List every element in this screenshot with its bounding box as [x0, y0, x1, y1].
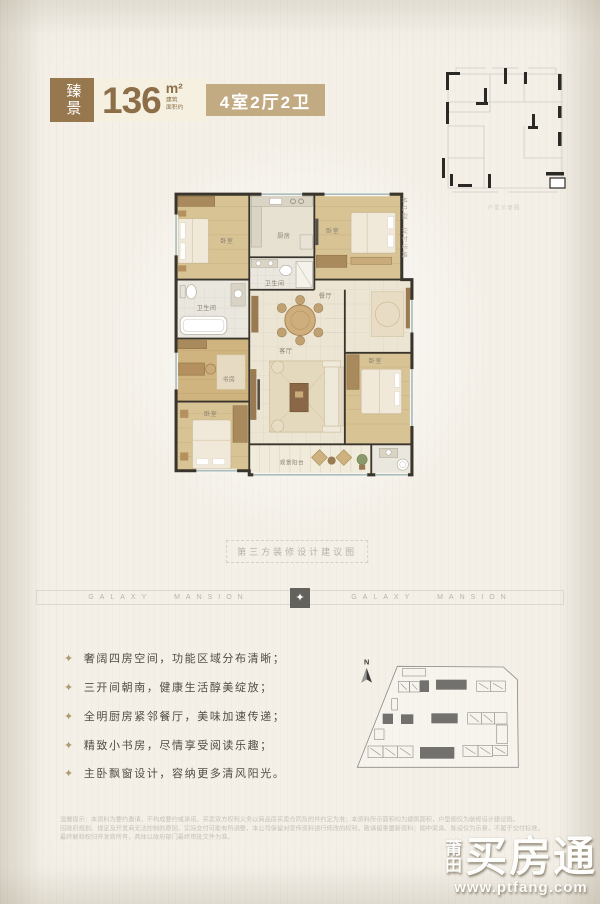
diamond-icon: ✦	[290, 588, 310, 608]
feature-text: 主卧飘窗设计，容纳更多清风阳光。	[84, 767, 286, 782]
watermark-city: 莆 田	[445, 840, 462, 875]
label-dining: 餐厅	[319, 292, 332, 300]
feature-text: 全明厨房紧邻餐厅，美味加速传递；	[84, 710, 286, 725]
header-badge: 臻景 136 m² 建筑 面积约 4室2厅2卫	[50, 78, 325, 122]
watermark-url: www.ptfang.com	[445, 879, 597, 896]
label-study: 书房	[222, 375, 235, 383]
project-tag-badge: 臻景	[50, 78, 94, 122]
feature-list: ✦ 奢阔四房空间，功能区域分布清晰； ✦ 三开间朝南，健康生活醇美绽放； ✦ 全…	[64, 652, 364, 796]
main-floor-plan: 卧室 卫生间 书房 卧室 厨房 卫生间 卧室 餐厅 客厅 卧室 观景阳台	[172, 190, 416, 484]
label-bedroom-tl: 卧室	[220, 237, 233, 245]
watermark-name: 买房通	[465, 836, 597, 878]
label-balcony: 观景阳台	[280, 459, 304, 467]
area-note: 建筑 面积约	[166, 97, 183, 112]
disclaimer-line: 温馨提示：本资料为要约邀请，不构成要约或承诺，买卖双方权利义务以商品房买卖合同及…	[60, 816, 537, 825]
site-watermark: 莆 田 买房通 www.ptfang.com	[445, 836, 597, 896]
north-arrow: N	[361, 658, 372, 683]
list-item: ✦ 奢阔四房空间，功能区域分布清晰；	[64, 652, 364, 667]
feature-text: 三开间朝南，健康生活醇美绽放；	[84, 681, 273, 696]
plan-disclaimer-caption: 第三方装修设计建议图	[226, 540, 368, 563]
diamond-bullet-icon: ✦	[64, 739, 75, 754]
label-bedroom-right: 卧室	[369, 357, 382, 365]
north-label: N	[364, 658, 369, 667]
diamond-bullet-icon: ✦	[64, 652, 75, 667]
list-item: ✦ 三开间朝南，健康生活醇美绽放；	[64, 681, 364, 696]
band-text-right: GALAXY MANSION	[300, 594, 563, 601]
feature-text: 奢阔四房空间，功能区域分布清晰；	[84, 652, 286, 667]
area-value: 136	[102, 82, 161, 119]
list-item: ✦ 精致小书房，尽情享受阅读乐趣；	[64, 739, 364, 754]
project-tag-char: 臻景	[63, 83, 82, 117]
list-item: ✦ 主卧飘窗设计，容纳更多清风阳光。	[64, 767, 364, 782]
floorplan-poster: 臻景 136 m² 建筑 面积约 4室2厅2卫	[0, 0, 600, 904]
diamond-bullet-icon: ✦	[64, 681, 75, 696]
mini-structure-plan: 户型示意图	[428, 62, 580, 218]
area-badge: 136 m² 建筑 面积约	[94, 78, 206, 122]
layout-badge: 4室2厅2卫	[206, 84, 325, 116]
label-living: 客厅	[279, 347, 292, 355]
label-bath-center: 卫生间	[265, 280, 285, 288]
band-text-left: GALAXY MANSION	[37, 594, 300, 601]
delivery-standard-note: 本户型 交付标准	[399, 197, 408, 260]
decorative-band: GALAXY MANSION GALAXY MANSION ✦	[36, 590, 564, 605]
mini-plan-caption: 户型示意图	[462, 203, 546, 211]
label-bedroom-tr: 卧室	[326, 227, 339, 235]
label-bath-left: 卫生间	[197, 304, 217, 312]
mini-wall-block	[550, 178, 565, 188]
floor-plan-svg: 卧室 卫生间 书房 卧室 厨房 卫生间 卧室 餐厅 客厅 卧室 观景阳台	[172, 190, 416, 479]
diamond-bullet-icon: ✦	[64, 767, 75, 782]
label-kitchen: 厨房	[277, 232, 290, 240]
site-plan: N	[344, 648, 584, 793]
area-unit: m²	[166, 81, 196, 95]
list-item: ✦ 全明厨房紧邻餐厅，美味加速传递；	[64, 710, 364, 725]
label-bedroom-bl: 卧室	[204, 410, 217, 418]
mini-light-outline	[448, 68, 562, 192]
site-plan-svg: N	[344, 648, 584, 788]
mini-walls	[442, 68, 564, 188]
mini-structure-svg	[428, 62, 580, 196]
feature-text: 精致小书房，尽情享受阅读乐趣；	[84, 739, 273, 754]
diamond-bullet-icon: ✦	[64, 710, 75, 725]
